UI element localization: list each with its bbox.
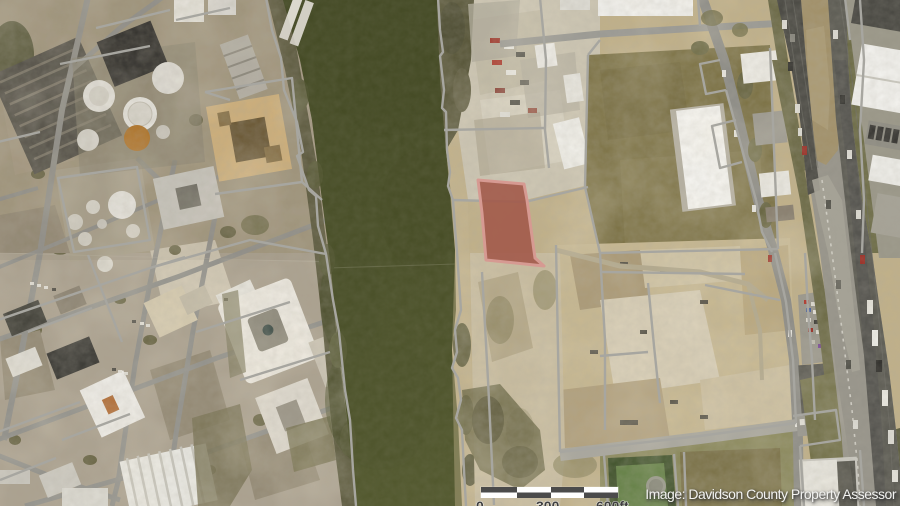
svg-text:600ft: 600ft bbox=[596, 498, 629, 506]
svg-text:Image: Davidson County Propert: Image: Davidson County Property Assessor bbox=[645, 486, 897, 502]
svg-text:300: 300 bbox=[536, 498, 560, 506]
svg-text:0: 0 bbox=[476, 498, 484, 506]
